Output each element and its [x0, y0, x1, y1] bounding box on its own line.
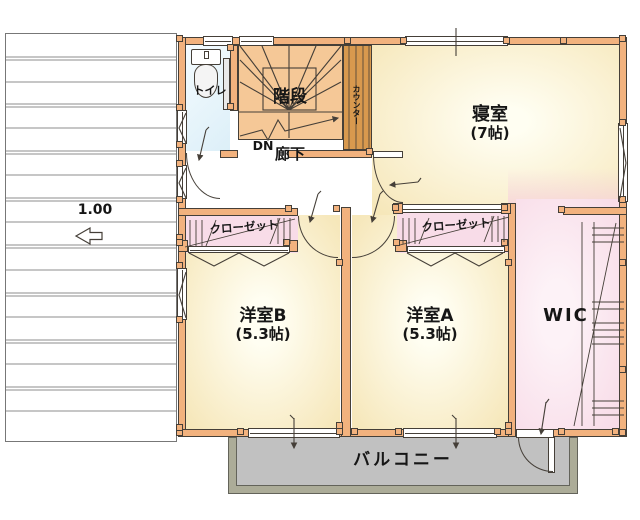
- counter-label: カウンター: [351, 70, 360, 140]
- closet-a-top-band: [397, 204, 507, 213]
- window-bedroom-top: [405, 36, 508, 46]
- wall-post: [285, 205, 292, 212]
- wall-post: [560, 37, 567, 44]
- room-b-label: 洋室B (5.3帖): [193, 307, 333, 343]
- window-hall-west-1: [177, 110, 187, 144]
- wall-post: [619, 35, 626, 42]
- wall-post: [505, 259, 512, 266]
- balcony-label: バルコニー: [300, 451, 506, 470]
- wall-post: [619, 429, 626, 436]
- wall-post: [494, 428, 501, 435]
- wall-post: [176, 316, 183, 323]
- wall-post: [505, 422, 512, 429]
- wall-post: [392, 204, 399, 211]
- wall-post: [612, 428, 619, 435]
- wall-post: [505, 428, 512, 435]
- wic-label: WIC: [540, 306, 592, 326]
- window-room-a-south: [403, 428, 497, 438]
- wall-closet-b-top: [178, 208, 298, 216]
- wall-post: [336, 422, 343, 429]
- stairs-label: 階段: [260, 88, 320, 107]
- wall-post: [619, 119, 626, 126]
- bedroom-label: 寝室 (7帖): [425, 105, 555, 142]
- window-room-b-south: [248, 428, 340, 438]
- wall-toilet-stub: [220, 150, 238, 158]
- window-room-b-west: [177, 268, 187, 320]
- wall-post: [400, 37, 407, 44]
- wall-rooms-ab: [341, 207, 351, 437]
- wall-post: [501, 239, 508, 246]
- wall-post: [344, 37, 351, 44]
- wall-post: [333, 205, 340, 212]
- wall-post: [283, 239, 290, 246]
- wall-post: [395, 428, 402, 435]
- wall-post: [176, 196, 183, 203]
- wall-post: [501, 204, 508, 211]
- wall-post: [503, 37, 510, 44]
- wall-post: [237, 428, 244, 435]
- wall-post: [366, 148, 373, 155]
- wall-right: [619, 37, 627, 437]
- wall-post: [619, 259, 626, 266]
- wall-post: [619, 196, 626, 203]
- wall-post: [558, 428, 565, 435]
- toilet-button-icon: [204, 51, 209, 59]
- wall-post: [393, 239, 400, 246]
- wall-wic-top: [563, 207, 627, 215]
- window-hall-west-2: [177, 165, 187, 199]
- floor-plan: 1.00 トイレ 階段 DN 廊下 カウンター 寝室 (7帖) クローゼット ク…: [0, 0, 640, 520]
- window-top-stairs: [239, 36, 274, 46]
- wall-post: [336, 259, 343, 266]
- wall-post: [227, 103, 234, 110]
- wall-post: [176, 141, 183, 148]
- closet-a-track: [407, 246, 505, 253]
- room-a-label: 洋室A (5.3帖): [360, 307, 500, 343]
- roof: [5, 33, 177, 442]
- toilet-label: トイレ: [188, 85, 232, 97]
- wall-post: [176, 424, 183, 431]
- wall-post: [176, 239, 183, 246]
- closet-b-track: [188, 246, 290, 253]
- wall-post: [619, 366, 626, 373]
- wall-post: [176, 104, 183, 111]
- window-bedroom-east: [618, 123, 628, 202]
- wall-post: [176, 160, 183, 167]
- wall-a-wic: [508, 203, 516, 437]
- hallway-label: 廊下: [264, 146, 316, 163]
- wall-post: [176, 35, 183, 42]
- wall-toilet-right: [230, 45, 238, 111]
- wall-post: [558, 206, 565, 213]
- wall-post: [336, 428, 343, 435]
- wall-post: [227, 44, 234, 51]
- wall-post: [176, 262, 183, 269]
- scale-label: 1.00: [70, 203, 120, 219]
- wall-post: [351, 428, 358, 435]
